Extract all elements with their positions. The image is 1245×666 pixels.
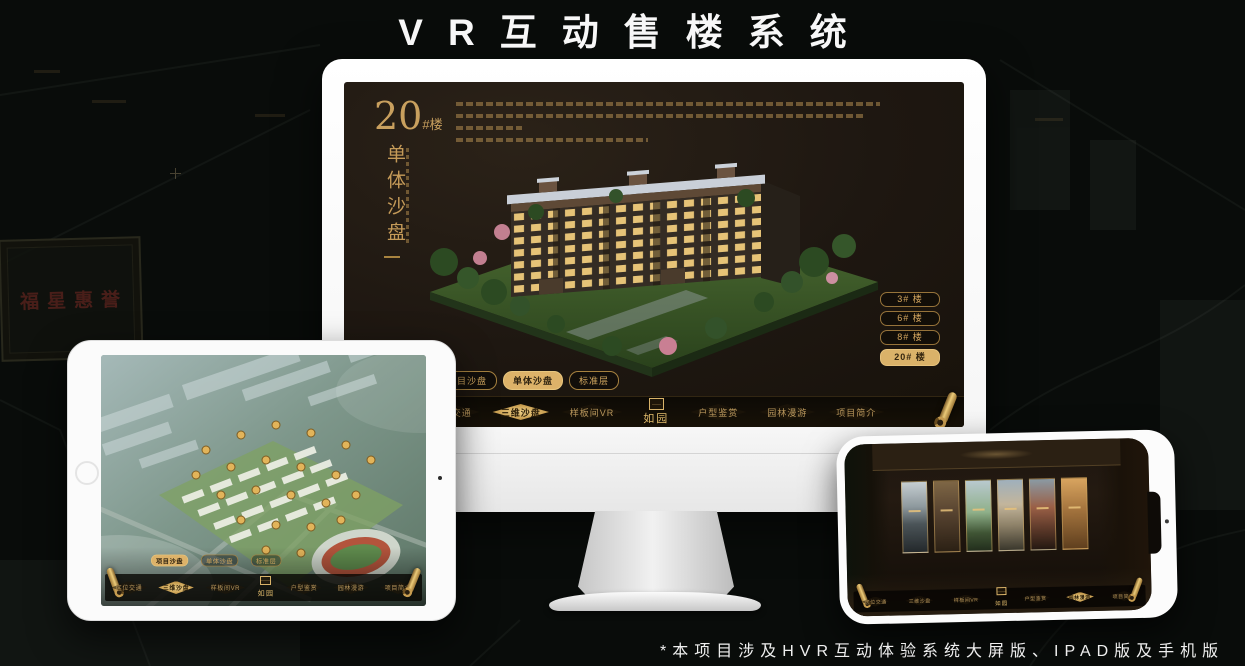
footnote: *本项目涉及HVR互动体验系统大屏版、IPAD版及手机版: [660, 637, 1224, 661]
tablet-navbar: 区位交通 三维沙盘 样板间VR 如园 户型鉴赏 园林漫游 项目简介: [105, 574, 422, 601]
phone-notch: [1147, 492, 1161, 554]
map-label-dash: [34, 70, 60, 73]
description-line: [456, 102, 880, 106]
floor-button-8[interactable]: 8# 楼: [880, 330, 940, 345]
interior-beam: [872, 438, 1121, 471]
project-logo: 如园: [990, 587, 1015, 611]
nav-item-showroom-vr[interactable]: 样板间VR: [941, 589, 990, 610]
sandbox-tabs: 项目沙盘 单体沙盘 标准层: [437, 371, 619, 390]
description-line: [456, 114, 864, 118]
logo-text: 如园: [258, 587, 275, 598]
nav-item-showroom-vr[interactable]: 样板间VR: [562, 400, 623, 424]
floor-button-3[interactable]: 3# 楼: [880, 292, 940, 307]
tab-standard-floor[interactable]: 标准层: [569, 371, 619, 390]
page-title: VR互动售楼系统: [0, 2, 1245, 56]
logo-seal-icon: [260, 576, 271, 585]
map-label-dash: [255, 114, 285, 117]
nav-item-floorplans[interactable]: 户型鉴赏: [1014, 587, 1058, 608]
nav-item-location[interactable]: 区位交通: [853, 591, 897, 612]
floor-button-6[interactable]: 6# 楼: [880, 311, 940, 326]
nav-item-garden-roam[interactable]: 园林漫游: [1058, 586, 1102, 607]
logo-text: 如园: [643, 410, 669, 426]
gallery-panel-courtyard[interactable]: [901, 481, 929, 554]
description-line: [456, 126, 522, 130]
gallery-panel-showroom[interactable]: [1061, 477, 1089, 550]
building-number: 20: [374, 94, 422, 138]
logo-seal-icon: [649, 398, 664, 410]
building-3d-render[interactable]: [416, 140, 888, 392]
building-number-suffix: #楼: [422, 117, 442, 132]
project-logo: 如园: [254, 576, 278, 600]
map-sparkle: [170, 168, 181, 179]
building-subtitle: 单体沙盘: [382, 144, 409, 248]
phone-camera: [1165, 519, 1169, 523]
phone-screen: 区位交通 三维沙盘 样板间VR 如园 户型鉴赏 园林漫游 项目简介: [844, 438, 1152, 617]
gallery-panel-interior[interactable]: [933, 480, 961, 553]
monitor-stand-neck: [578, 511, 734, 595]
floor-button-group: 3# 楼 6# 楼 8# 楼 20# 楼: [880, 292, 940, 366]
nav-item-3d-sandbox[interactable]: 三维沙盘: [897, 590, 941, 611]
nav-item-project-intro[interactable]: 项目简介: [828, 400, 884, 424]
map-label-dash: [1035, 118, 1063, 121]
building-title: 20#楼: [374, 94, 443, 138]
gallery-panel-building[interactable]: [997, 479, 1025, 552]
subtitle-english-decor: [406, 148, 409, 244]
nav-item-garden-roam[interactable]: 园林漫游: [328, 577, 374, 599]
tab-single-sandbox[interactable]: 单体沙盘: [201, 555, 238, 567]
signboard-text: 福星惠誉: [20, 285, 129, 315]
scroll-menu-icon[interactable]: [931, 389, 961, 427]
logo-text: 如园: [995, 598, 1008, 607]
tab-single-sandbox[interactable]: 单体沙盘: [503, 371, 563, 390]
floor-button-20[interactable]: 20# 楼: [880, 349, 940, 366]
project-logo: 如园: [643, 398, 669, 426]
render-building: [507, 161, 800, 298]
monitor-stand-base: [549, 592, 761, 611]
tablet-home-button[interactable]: [75, 461, 99, 485]
logo-seal-icon: [997, 587, 1007, 595]
nav-item-floorplans[interactable]: 户型鉴赏: [281, 577, 327, 599]
tablet-device: 项目沙盘 单体沙盘 标准层 区位交通 三维沙盘 样板间VR 如园 户型鉴赏 园林…: [67, 340, 456, 621]
gallery-panel-garden[interactable]: [965, 479, 993, 552]
tablet-sandbox-tabs: 项目沙盘 单体沙盘 标准层: [151, 551, 286, 570]
phone-device: 区位交通 三维沙盘 样板间VR 如园 户型鉴赏 园林漫游 项目简介: [836, 429, 1178, 625]
scene-gallery: [901, 477, 1089, 553]
nav-item-showroom-vr[interactable]: 样板间VR: [200, 577, 251, 599]
tablet-camera: [438, 476, 442, 480]
nav-item-garden-roam[interactable]: 园林漫游: [759, 400, 815, 424]
tab-standard-floor[interactable]: 标准层: [251, 555, 281, 567]
nav-item-3d-sandbox[interactable]: 三维沙盘: [493, 400, 549, 424]
gallery-panel-gate[interactable]: [1029, 478, 1057, 551]
map-label-dash: [92, 100, 126, 103]
nav-item-location[interactable]: 区位交通: [106, 577, 152, 599]
nav-item-3d-sandbox[interactable]: 三维沙盘: [153, 577, 199, 599]
tablet-screen: 项目沙盘 单体沙盘 标准层 区位交通 三维沙盘 样板间VR 如园 户型鉴赏 园林…: [101, 355, 426, 606]
nav-item-floorplans[interactable]: 户型鉴赏: [690, 400, 746, 424]
tab-project-sandbox[interactable]: 项目沙盘: [151, 555, 188, 567]
